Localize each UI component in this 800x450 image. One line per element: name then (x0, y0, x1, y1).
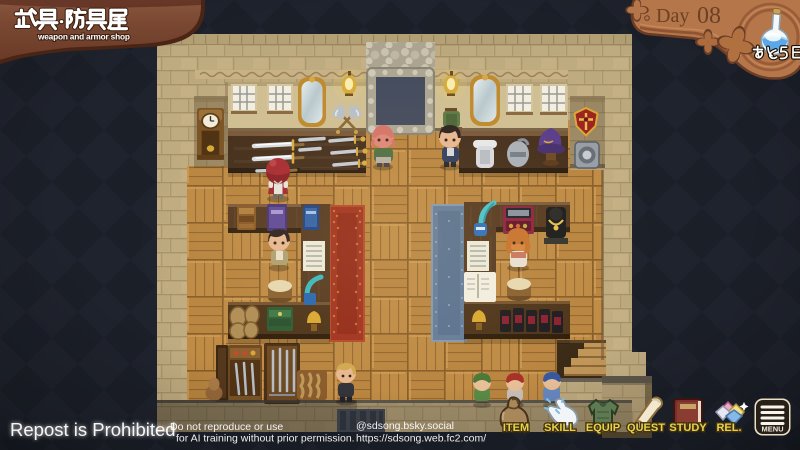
svg-text:REL.: REL. (716, 422, 741, 434)
svg-text:https://sdsong.web.fc2.com/: https://sdsong.web.fc2.com/ (356, 433, 486, 445)
svg-text:for AI training without prior: for AI training without prior permission… (176, 433, 355, 445)
svg-text:Repost is Prohibited: Repost is Prohibited (10, 419, 176, 440)
svg-text:08: 08 (697, 3, 721, 29)
svg-text:QUEST: QUEST (627, 422, 665, 434)
svg-text:EQUIP: EQUIP (586, 422, 620, 434)
svg-text:@sdsong.bsky.social: @sdsong.bsky.social (356, 420, 454, 432)
svg-text:STUDY: STUDY (669, 422, 707, 434)
svg-text:weapon and armor shop: weapon and armor shop (37, 32, 130, 42)
svg-text:Day: Day (656, 5, 689, 27)
svg-text:Do not reproduce or use: Do not reproduce or use (170, 421, 283, 433)
svg-text:MENU: MENU (761, 425, 783, 434)
svg-text:ITEM: ITEM (503, 422, 529, 434)
svg-text:SKILL: SKILL (544, 422, 576, 434)
